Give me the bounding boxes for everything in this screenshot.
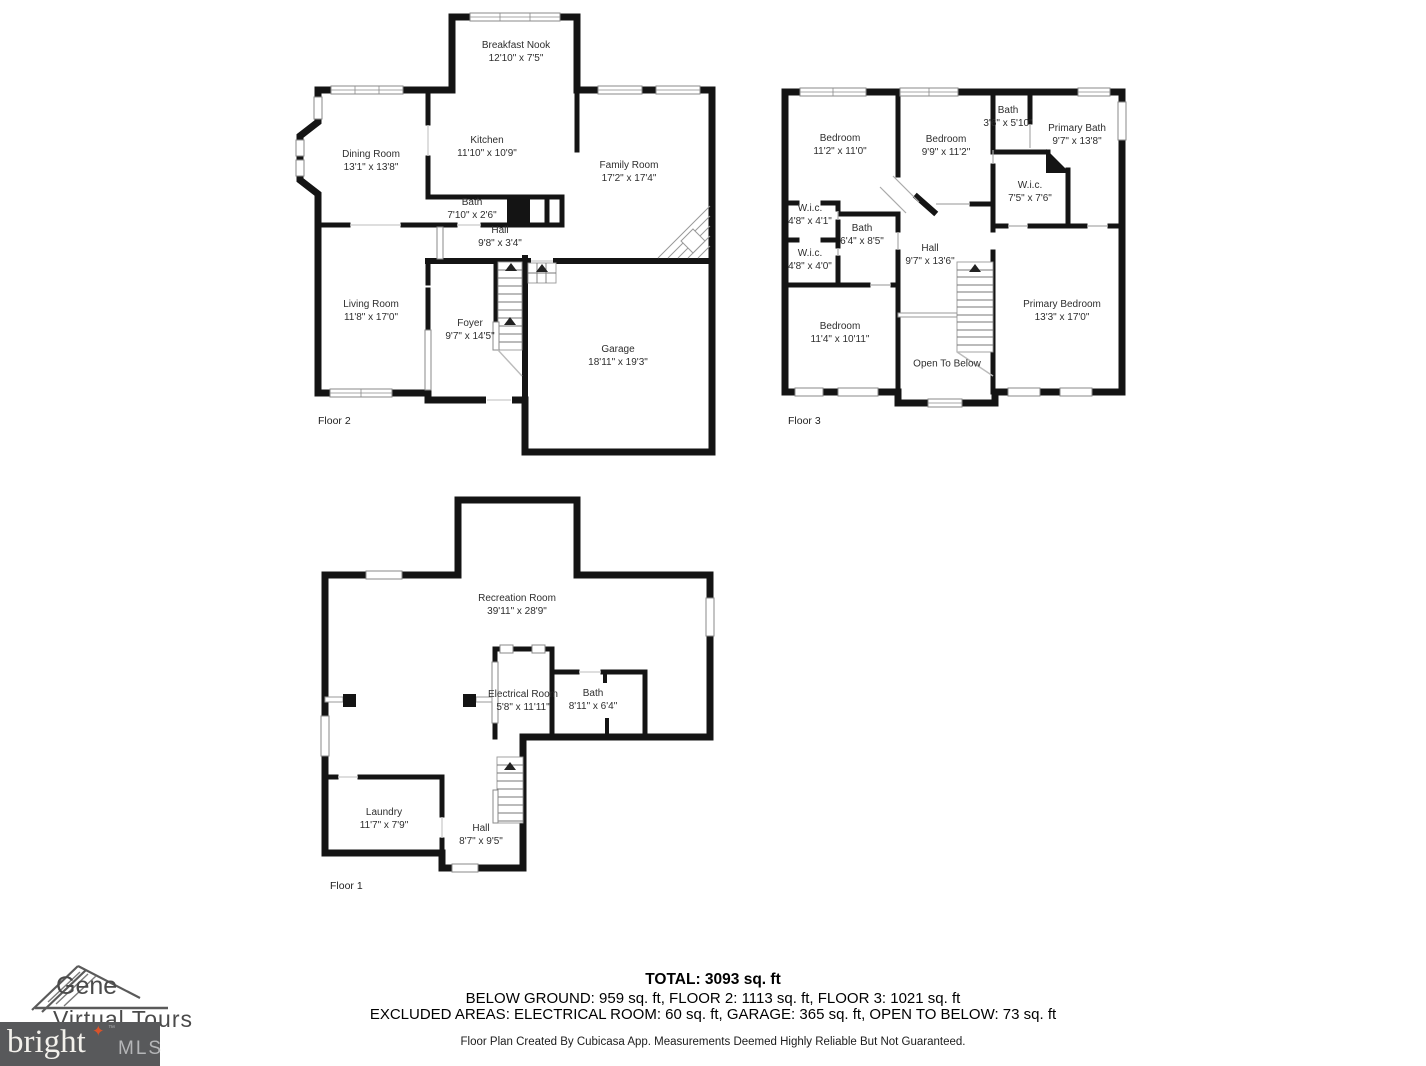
room-label-family-room: Family Room 17'2" x 17'4": [600, 159, 659, 185]
room-label-bath-floor3: Bath 6'4" x 8'5": [840, 222, 884, 248]
room-label-wic-left-1: W.i.c. 4'8" x 4'1": [788, 202, 832, 228]
area-by-floor-text: BELOW GROUND: 959 sq. ft, FLOOR 2: 1113 …: [0, 990, 1426, 1007]
room-label-wic-primary: W.i.c. 7'5" x 7'6": [1008, 179, 1052, 205]
room-label-recreation-room: Recreation Room 39'11" x 28'9": [478, 592, 556, 618]
room-label-garage: Garage 18'11" x 19'3": [588, 343, 648, 369]
room-label-open-to-below: Open To Below: [913, 357, 981, 370]
trademark-symbol: ™: [108, 1025, 115, 1032]
floor2-label: Floor 2: [318, 415, 351, 427]
room-label-bath-floor2: Bath 7'10" x 2'6": [447, 196, 496, 222]
room-label-bath-floor1: Bath 8'11" x 6'4": [569, 687, 618, 713]
room-label-living-room: Living Room 11'8" x 17'0": [343, 298, 399, 324]
room-label-bedroom-1: Bedroom 11'2" x 11'0": [813, 132, 866, 158]
room-label-bath-small: Bath 3'6" x 5'10": [983, 104, 1032, 130]
total-area-text: TOTAL: 3093 sq. ft: [0, 971, 1426, 989]
room-label-primary-bedroom: Primary Bedroom 13'3" x 17'0": [1023, 298, 1101, 324]
room-label-dining-room: Dining Room 13'1" x 13'8": [342, 148, 400, 174]
excluded-areas-text: EXCLUDED AREAS: ELECTRICAL ROOM: 60 sq. …: [0, 1006, 1426, 1023]
room-label-primary-bath: Primary Bath 9'7" x 13'8": [1048, 122, 1106, 148]
room-label-breakfast-nook: Breakfast Nook 12'10" x 7'5": [482, 39, 550, 65]
room-label-bedroom-2: Bedroom 9'9" x 11'2": [922, 133, 971, 159]
room-label-wic-left-2: W.i.c. 4'8" x 4'0": [788, 247, 832, 273]
floorplan-walls-drawing: [0, 0, 1426, 1066]
room-label-hall-floor1: Hall 8'7" x 9'5": [459, 822, 503, 848]
floor3-label: Floor 3: [788, 415, 821, 427]
room-label-foyer: Foyer 9'7" x 14'5": [445, 317, 494, 343]
room-label-bedroom-3: Bedroom 11'4" x 10'11": [811, 320, 870, 346]
room-label-hall-floor3: Hall 9'7" x 13'6": [905, 242, 954, 268]
floor1-label: Floor 1: [330, 880, 363, 892]
disclaimer-text: Floor Plan Created By Cubicasa App. Meas…: [0, 1036, 1426, 1048]
room-label-laundry: Laundry 11'7" x 7'9": [360, 806, 409, 832]
room-label-kitchen: Kitchen 11'10" x 10'9": [457, 134, 517, 160]
room-label-electrical-room: Electrical Room 5'8" x 11'11": [488, 688, 558, 714]
floor-plan-page: Breakfast Nook 12'10" x 7'5" Dining Room…: [0, 0, 1426, 1066]
room-label-hall-floor2: Hall 9'8" x 3'4": [478, 224, 522, 250]
